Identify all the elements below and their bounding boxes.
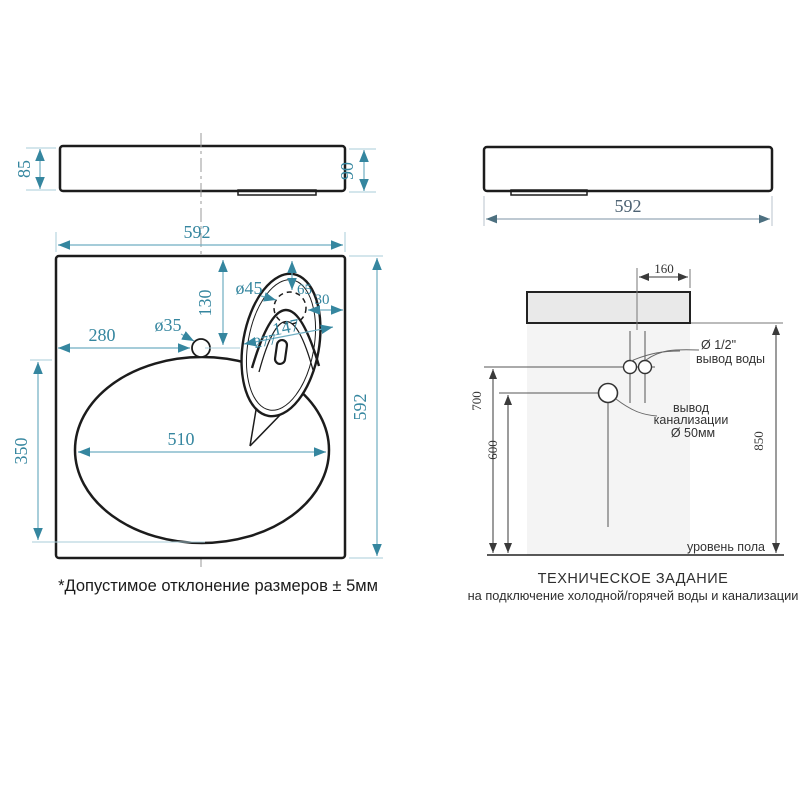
water-outlet-right: [639, 361, 652, 374]
dim-90-label: 90: [337, 162, 357, 180]
dim-30-label: 30: [315, 292, 330, 308]
dim-350-label: 350: [11, 438, 31, 465]
dim-592-right-label: 592: [350, 394, 370, 421]
top-view: 592 592 350 510 280 130: [11, 133, 383, 567]
water-dia-label: Ø 1/2": [701, 338, 736, 352]
drain-dia-label: Ø 50мм: [671, 426, 715, 440]
dim-85-label: 85: [14, 160, 34, 178]
dim-width-592-top: 592: [56, 222, 345, 252]
side-view: 592: [484, 147, 772, 226]
drain-label-2: канализации: [654, 413, 729, 427]
install-subtitle: на подключение холодной/горячей воды и к…: [468, 588, 799, 603]
dim-130-label: 130: [195, 290, 215, 317]
dim-65-label: 65: [297, 282, 312, 298]
dim-600: 600: [485, 395, 508, 553]
install-title: ТЕХНИЧЕСКОЕ ЗАДАНИЕ: [538, 571, 729, 587]
basin-side-ledge: [511, 190, 587, 195]
basin-front-ledge: [238, 190, 316, 195]
technical-drawing: 85 90 592 592 592: [0, 0, 800, 800]
water-outlet-left: [624, 361, 637, 374]
dim-160-label: 160: [654, 261, 674, 276]
tolerance-note: *Допустимое отклонение размеров ± 5мм: [58, 577, 378, 595]
drain-circle: [599, 384, 618, 403]
basin-side-outline: [484, 147, 772, 191]
install-diagram: 160 Ø 1/2" вывод воды вывод канализации …: [468, 261, 799, 603]
dim-700-label: 700: [469, 391, 484, 411]
dim-height-85: 85: [14, 148, 56, 190]
basin-front-outline: [60, 146, 345, 191]
sink-silhouette: [527, 292, 690, 323]
dim-592-top-label: 592: [184, 222, 211, 242]
water-label: вывод воды: [696, 352, 765, 366]
front-view: 85 90: [14, 146, 376, 195]
dim-bowl-350: 350: [11, 360, 52, 540]
floor-label: уровень пола: [687, 540, 765, 554]
dim-700: 700: [469, 369, 493, 553]
dim-width-592-side: 592: [484, 196, 772, 226]
dia-35-label: ø35: [155, 315, 182, 335]
dim-280-label: 280: [89, 325, 116, 345]
dia-45-label: ø45: [236, 278, 263, 298]
dim-600-label: 600: [485, 440, 500, 460]
dim-592-side-label: 592: [615, 196, 642, 216]
dim-850-label: 850: [751, 431, 766, 451]
dim-510-label: 510: [168, 429, 195, 449]
